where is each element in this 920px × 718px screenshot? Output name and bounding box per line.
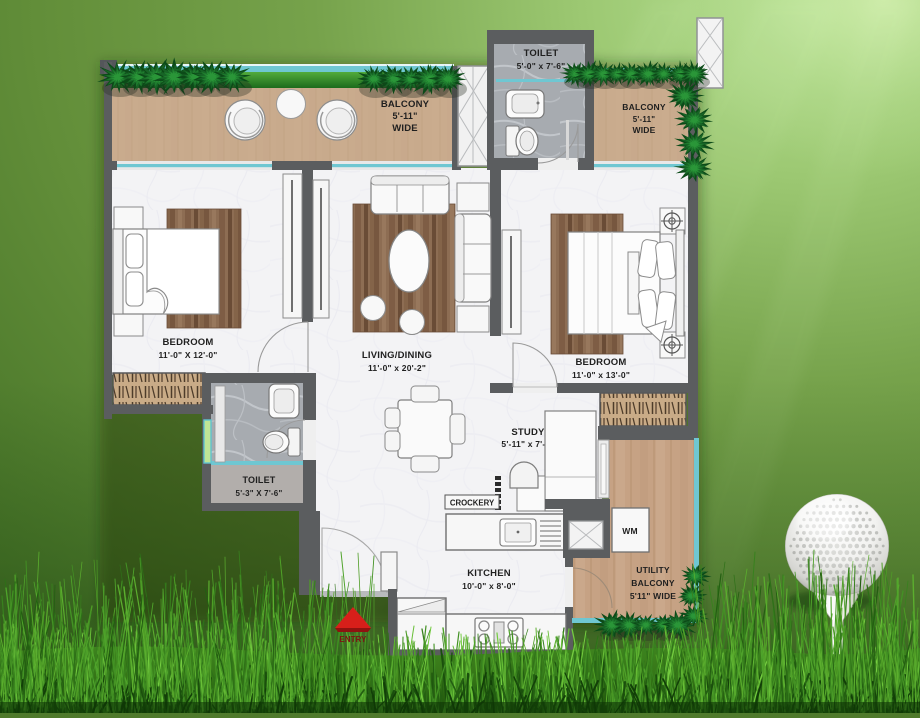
svg-text:BEDROOM: BEDROOM xyxy=(575,357,626,368)
svg-text:10'-0" x 8'-0": 10'-0" x 8'-0" xyxy=(462,581,516,591)
svg-text:BALCONY: BALCONY xyxy=(622,102,666,112)
svg-text:BEDROOM: BEDROOM xyxy=(162,337,213,348)
svg-text:5'11" WIDE: 5'11" WIDE xyxy=(630,591,676,601)
svg-text:STUDY: STUDY xyxy=(511,427,545,438)
svg-text:WM: WM xyxy=(622,526,638,536)
svg-text:KITCHEN: KITCHEN xyxy=(467,568,511,579)
svg-text:11'-0" X 12'-0": 11'-0" X 12'-0" xyxy=(158,350,217,360)
svg-text:ENTRY: ENTRY xyxy=(339,635,367,644)
svg-text:BALCONY: BALCONY xyxy=(631,578,675,588)
svg-text:UTILITY: UTILITY xyxy=(636,565,670,575)
svg-text:5'-0" x 7'-6": 5'-0" x 7'-6" xyxy=(517,61,566,71)
svg-text:TOILET: TOILET xyxy=(242,475,275,485)
svg-text:BALCONY: BALCONY xyxy=(381,99,430,110)
svg-text:5'-3" X 7'-6": 5'-3" X 7'-6" xyxy=(236,489,283,498)
svg-text:5'-11": 5'-11" xyxy=(392,111,417,121)
svg-text:11'-0" x 13'-0": 11'-0" x 13'-0" xyxy=(572,370,630,380)
svg-text:CROCKERY: CROCKERY xyxy=(450,499,495,508)
svg-text:LIVING/DINING: LIVING/DINING xyxy=(362,350,432,361)
svg-text:11'-0" x 20'-2": 11'-0" x 20'-2" xyxy=(368,363,426,373)
svg-text:5'-11": 5'-11" xyxy=(633,115,655,124)
svg-text:TOILET: TOILET xyxy=(524,48,559,59)
svg-text:WIDE: WIDE xyxy=(633,125,656,135)
svg-text:WIDE: WIDE xyxy=(392,123,418,134)
